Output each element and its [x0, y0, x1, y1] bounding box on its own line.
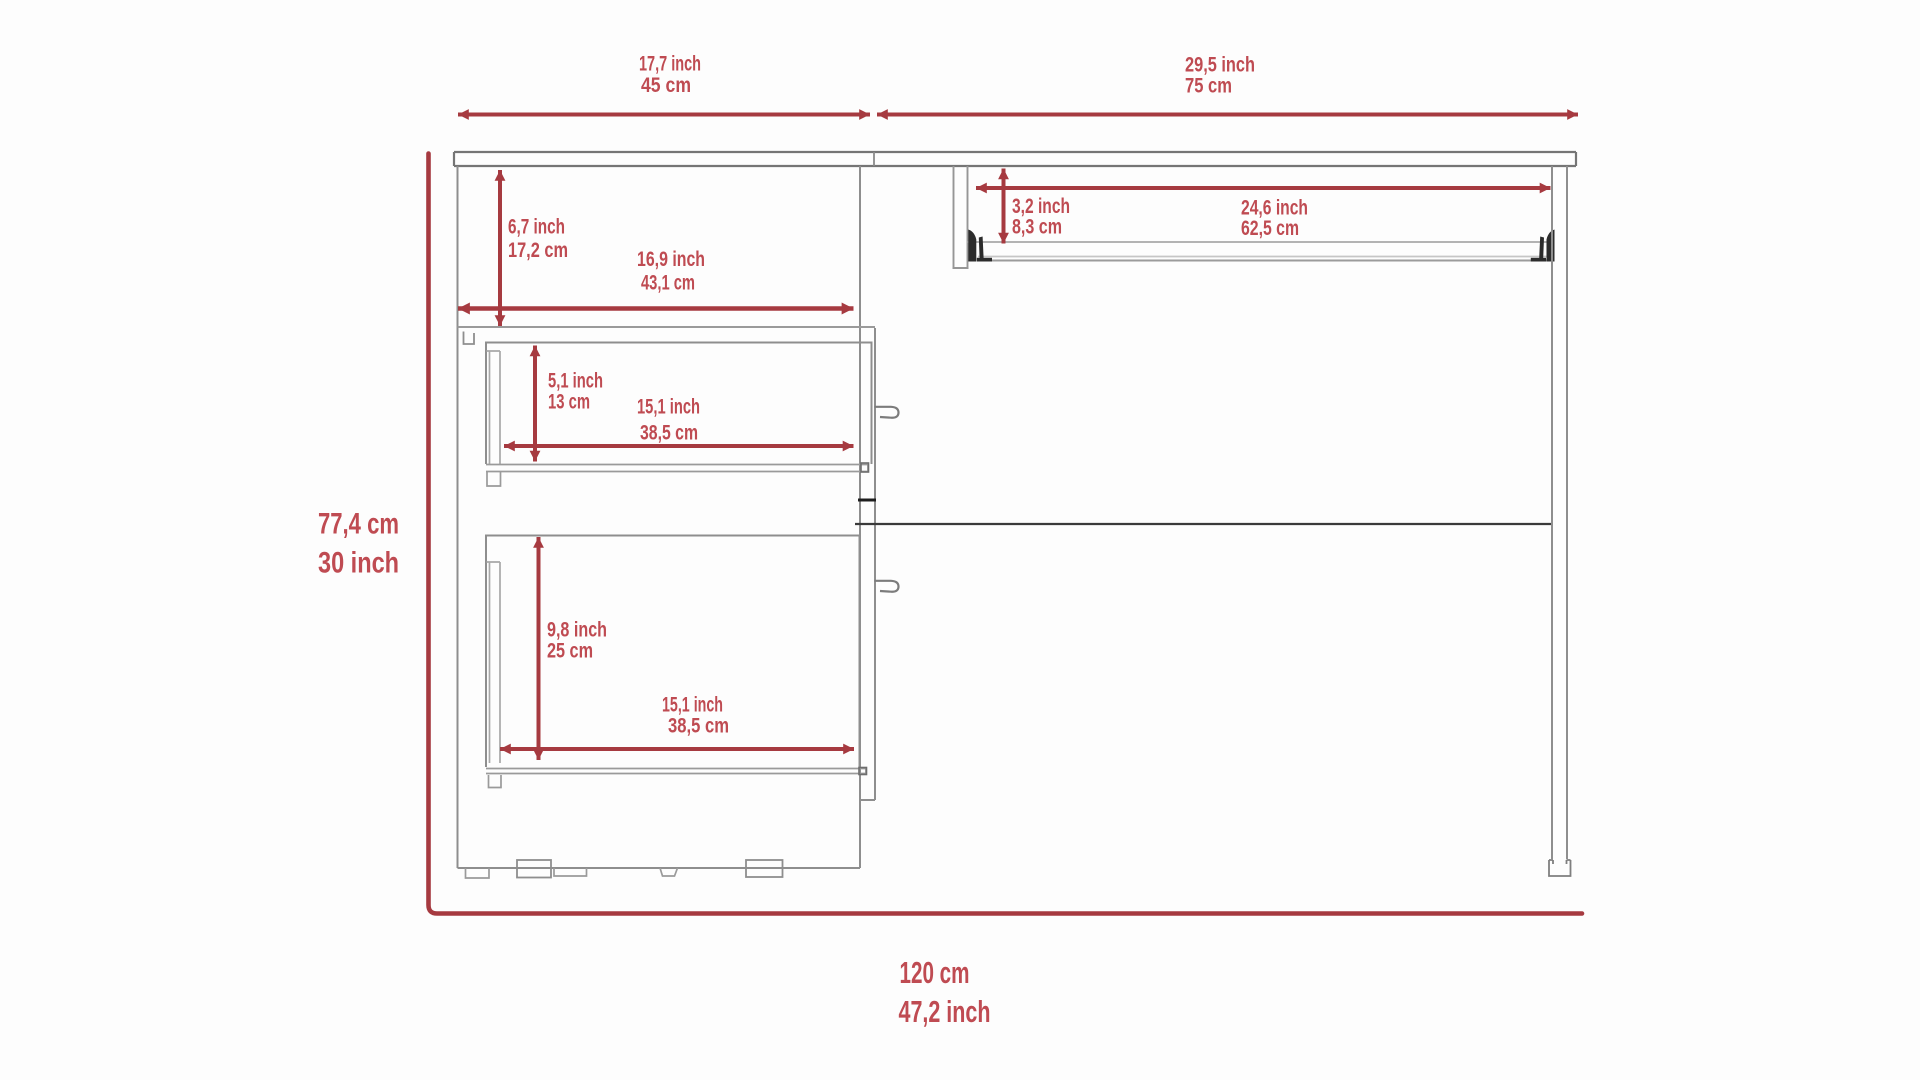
- svg-text:47,2 inch: 47,2 inch: [899, 994, 991, 1029]
- svg-text:13 cm: 13 cm: [548, 391, 590, 414]
- svg-text:9,8 inch: 9,8 inch: [547, 619, 607, 642]
- svg-text:75 cm: 75 cm: [1185, 75, 1232, 98]
- svg-text:38,5 cm: 38,5 cm: [640, 422, 698, 445]
- svg-text:6,7 inch: 6,7 inch: [508, 216, 565, 239]
- svg-text:43,1 cm: 43,1 cm: [641, 272, 695, 295]
- svg-text:8,3 cm: 8,3 cm: [1012, 216, 1062, 239]
- svg-text:62,5 cm: 62,5 cm: [1241, 217, 1299, 240]
- svg-text:17,2 cm: 17,2 cm: [508, 239, 568, 262]
- svg-text:15,1 inch: 15,1 inch: [662, 694, 723, 717]
- svg-text:5,1 inch: 5,1 inch: [548, 370, 603, 393]
- svg-text:38,5 cm: 38,5 cm: [668, 715, 729, 738]
- svg-text:15,1 inch: 15,1 inch: [637, 396, 700, 419]
- svg-text:120 cm: 120 cm: [900, 955, 970, 990]
- svg-text:45 cm: 45 cm: [641, 74, 691, 97]
- svg-text:16,9 inch: 16,9 inch: [637, 248, 705, 271]
- svg-text:17,7 inch: 17,7 inch: [639, 53, 701, 76]
- svg-text:30 inch: 30 inch: [318, 547, 399, 580]
- svg-text:29,5 inch: 29,5 inch: [1185, 54, 1255, 77]
- svg-text:77,4 cm: 77,4 cm: [318, 508, 399, 541]
- svg-text:25 cm: 25 cm: [547, 640, 593, 663]
